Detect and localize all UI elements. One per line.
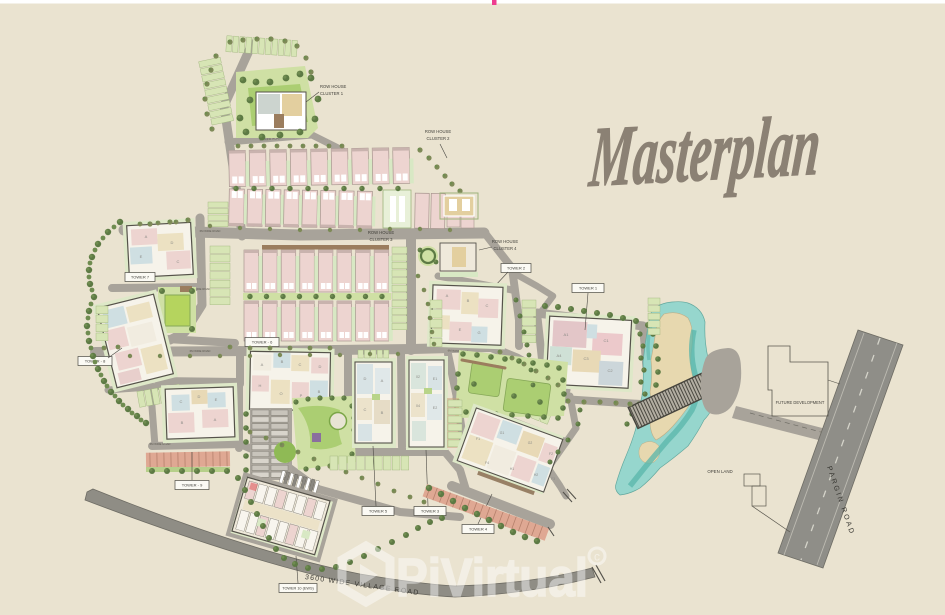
svg-text:CLUSTER 2: CLUSTER 2 <box>426 136 450 141</box>
svg-text:G2: G2 <box>528 441 533 445</box>
svg-text:TOWER 4: TOWER 4 <box>469 527 488 532</box>
svg-text:C: C <box>486 303 489 308</box>
svg-text:G1: G1 <box>500 431 505 435</box>
svg-text:CLUSTER 1: CLUSTER 1 <box>320 91 344 96</box>
svg-text:A: A <box>381 378 384 383</box>
svg-text:E: E <box>459 327 462 332</box>
svg-text:Masterplan: Masterplan <box>585 97 824 205</box>
svg-text:A: A <box>446 293 449 298</box>
svg-text:ROW HOUSE: ROW HOUSE <box>425 129 451 134</box>
svg-text:H: H <box>259 383 262 388</box>
svg-text:B: B <box>281 359 284 364</box>
svg-text:H2: H2 <box>534 473 538 477</box>
svg-text:C: C <box>180 399 183 404</box>
svg-text:TOWER - 6: TOWER - 6 <box>252 340 273 345</box>
svg-text:D: D <box>364 376 367 381</box>
svg-text:E2: E2 <box>433 406 437 410</box>
svg-text:TOWER - 9: TOWER - 9 <box>182 483 203 488</box>
svg-text:c: c <box>594 550 600 564</box>
svg-text:E1: E1 <box>433 377 437 381</box>
svg-text:F4: F4 <box>485 461 489 465</box>
svg-text:OPEN LAND: OPEN LAND <box>707 469 732 474</box>
svg-text:C: C <box>364 407 367 412</box>
svg-text:6M WIDE ROAD: 6M WIDE ROAD <box>190 349 211 353</box>
svg-text:B: B <box>181 420 184 425</box>
svg-text:G: G <box>477 330 480 335</box>
svg-text:E: E <box>140 254 143 259</box>
svg-text:B: B <box>318 389 321 394</box>
svg-text:P: P <box>300 393 303 398</box>
svg-text:E: E <box>215 397 218 402</box>
svg-text:CLUSTER 4: CLUSTER 4 <box>493 246 517 251</box>
svg-text:TOWER 2: TOWER 2 <box>507 266 526 271</box>
svg-text:ROW HOUSE: ROW HOUSE <box>492 239 518 244</box>
svg-text:A4: A4 <box>557 353 563 358</box>
svg-text:F1: F1 <box>476 437 480 441</box>
svg-text:C: C <box>299 362 302 367</box>
svg-text:C1: C1 <box>603 338 609 343</box>
svg-text:04: 04 <box>416 404 420 408</box>
svg-text:A: A <box>261 362 264 367</box>
svg-text:C3: C3 <box>583 356 589 361</box>
svg-text:B: B <box>467 298 470 303</box>
svg-text:TOWER 3: TOWER 3 <box>421 509 440 514</box>
svg-text:D: D <box>171 240 174 245</box>
svg-text:TOWER 5: TOWER 5 <box>369 509 388 514</box>
svg-text:C2: C2 <box>607 368 613 373</box>
svg-text:F3: F3 <box>551 477 555 481</box>
svg-text:TOWER 1: TOWER 1 <box>579 286 598 291</box>
svg-text:TOWER 7: TOWER 7 <box>131 275 150 280</box>
svg-text:PiVirtual: PiVirtual <box>396 548 588 608</box>
svg-text:D: D <box>198 394 201 399</box>
svg-text:H1: H1 <box>510 467 514 471</box>
svg-text:B: B <box>381 410 384 415</box>
svg-text:FUTURE DEVELOPMENT: FUTURE DEVELOPMENT <box>776 400 825 405</box>
svg-text:A: A <box>214 417 217 422</box>
svg-text:A1: A1 <box>564 332 570 337</box>
svg-text:6M WIDE ROAD: 6M WIDE ROAD <box>200 229 221 233</box>
svg-text:ROW HOUSE: ROW HOUSE <box>320 84 346 89</box>
svg-text:02: 02 <box>416 375 420 379</box>
svg-text:CLUSTER 3: CLUSTER 3 <box>369 237 393 242</box>
svg-text:C: C <box>177 259 180 264</box>
svg-text:A: A <box>145 234 148 239</box>
svg-text:TOWER 10 (EWS): TOWER 10 (EWS) <box>282 587 314 591</box>
svg-text:D: D <box>319 364 322 369</box>
svg-text:F2: F2 <box>549 452 553 456</box>
svg-text:O: O <box>279 391 282 396</box>
